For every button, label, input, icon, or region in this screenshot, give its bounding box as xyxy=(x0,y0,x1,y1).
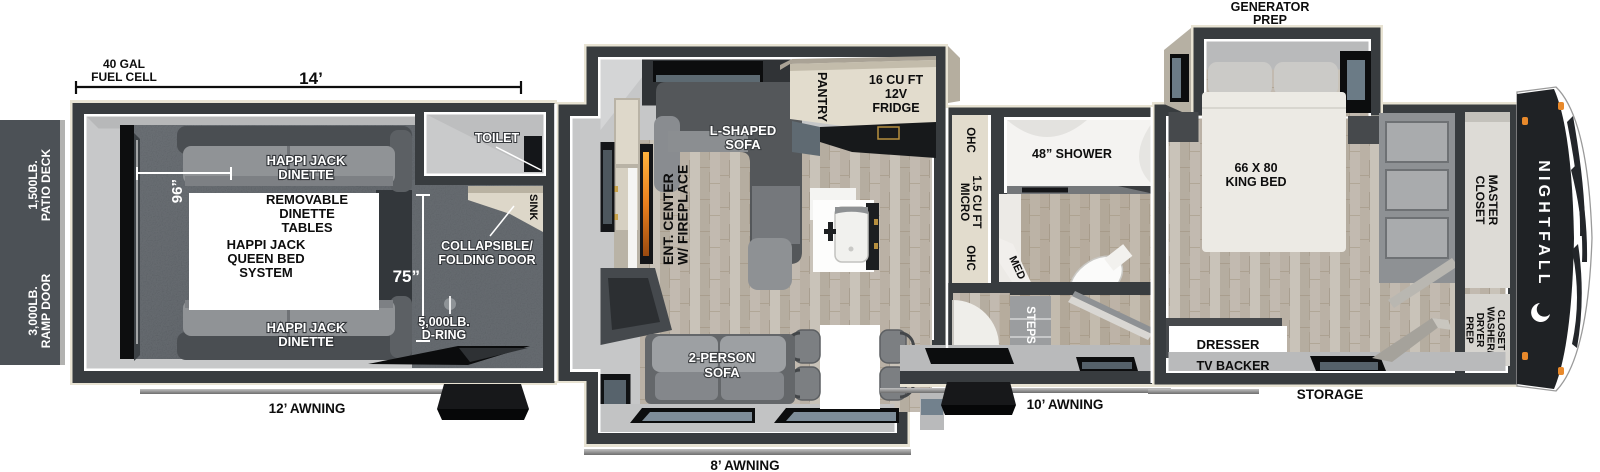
svg-text:GENERATOR: GENERATOR xyxy=(1231,0,1310,14)
svg-text:75”: 75” xyxy=(393,267,420,286)
svg-text:STORAGE: STORAGE xyxy=(1297,387,1364,402)
svg-text:SOFA: SOFA xyxy=(704,365,740,380)
svg-text:L-SHAPED: L-SHAPED xyxy=(710,123,776,138)
svg-text:DINETTE: DINETTE xyxy=(279,206,335,221)
svg-text:1.5 CU FTMICRO: 1.5 CU FTMICRO xyxy=(958,175,982,228)
svg-text:5,000LB.: 5,000LB. xyxy=(418,315,469,329)
svg-text:DRESSER: DRESSER xyxy=(1197,337,1260,352)
svg-text:10’ AWNING: 10’ AWNING xyxy=(1027,397,1104,412)
svg-text:TOILET: TOILET xyxy=(475,131,520,145)
svg-text:8’ AWNING: 8’ AWNING xyxy=(710,458,779,472)
svg-text:HAPPI JACK: HAPPI JACK xyxy=(227,237,306,252)
svg-text:SYSTEM: SYSTEM xyxy=(239,265,292,280)
svg-text:PREP: PREP xyxy=(1253,13,1287,27)
svg-text:HAPPI JACK: HAPPI JACK xyxy=(267,320,346,335)
svg-text:PANTRY: PANTRY xyxy=(815,72,829,123)
svg-text:FUEL CELL: FUEL CELL xyxy=(91,70,157,84)
svg-text:2-PERSON: 2-PERSON xyxy=(689,350,755,365)
svg-text:16 CU FT: 16 CU FT xyxy=(869,73,924,87)
svg-text:SINK: SINK xyxy=(527,194,539,220)
svg-text:ENT. CENTERW/ FIREPLACE: ENT. CENTERW/ FIREPLACE xyxy=(660,165,691,265)
svg-text:DINETTE: DINETTE xyxy=(278,167,334,182)
svg-text:OHC: OHC xyxy=(964,245,976,271)
svg-text:96”: 96” xyxy=(169,179,186,203)
svg-text:TV BACKER: TV BACKER xyxy=(1197,359,1270,373)
svg-text:HAPPI JACK: HAPPI JACK xyxy=(267,153,346,168)
svg-text:OHC: OHC xyxy=(964,127,976,153)
svg-text:12V: 12V xyxy=(885,87,908,101)
svg-text:NIGHTFALL: NIGHTFALL xyxy=(1535,160,1552,288)
svg-text:TABLES: TABLES xyxy=(281,220,332,235)
svg-text:STEPS: STEPS xyxy=(1024,306,1036,344)
svg-text:48” SHOWER: 48” SHOWER xyxy=(1032,147,1112,161)
svg-text:KING BED: KING BED xyxy=(1225,175,1286,189)
svg-text:66 X 80: 66 X 80 xyxy=(1234,161,1277,175)
svg-text:FOLDING DOOR: FOLDING DOOR xyxy=(438,253,535,267)
svg-text:40 GAL: 40 GAL xyxy=(103,57,145,71)
svg-text:SOFA: SOFA xyxy=(725,137,761,152)
svg-text:D-RING: D-RING xyxy=(422,328,466,342)
svg-text:14’: 14’ xyxy=(299,69,323,88)
svg-text:COLLAPSIBLE/: COLLAPSIBLE/ xyxy=(441,239,533,253)
svg-text:MASTERCLOSET: MASTERCLOSET xyxy=(1473,175,1500,226)
svg-text:QUEEN BED: QUEEN BED xyxy=(227,251,304,266)
svg-text:12’ AWNING: 12’ AWNING xyxy=(269,401,346,416)
svg-text:DINETTE: DINETTE xyxy=(278,334,334,349)
svg-text:FRIDGE: FRIDGE xyxy=(872,101,919,115)
svg-text:REMOVABLE: REMOVABLE xyxy=(266,192,348,207)
